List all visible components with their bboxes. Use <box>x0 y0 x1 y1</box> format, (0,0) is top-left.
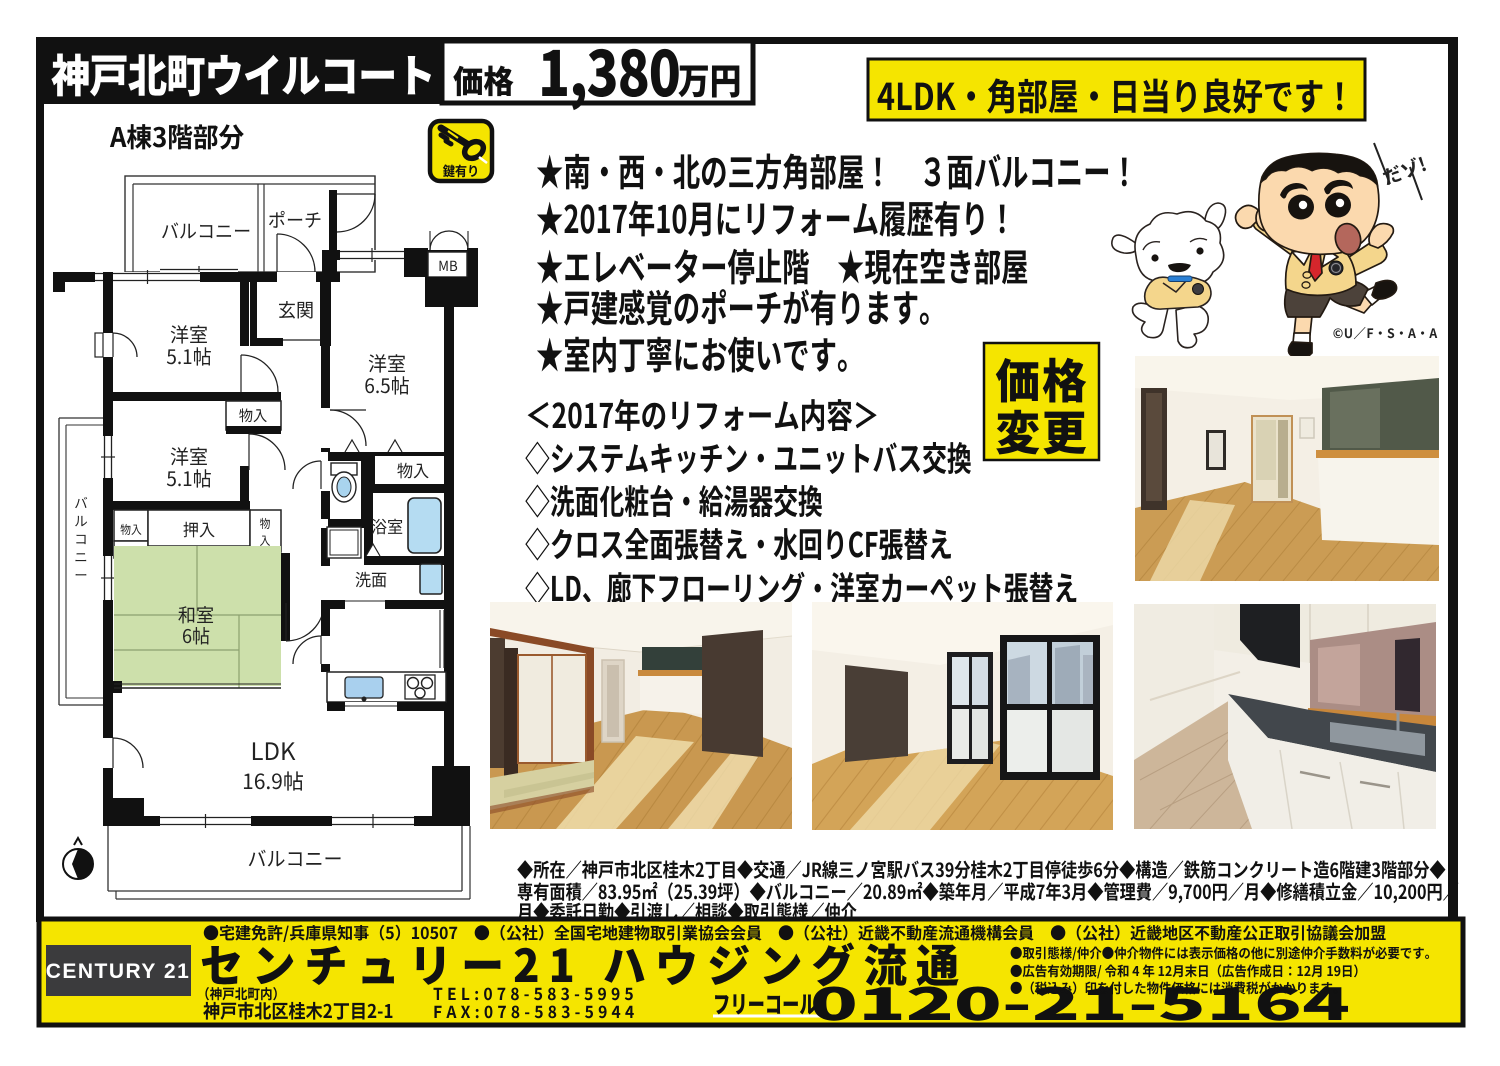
svg-text:CENTURY 21: CENTURY 21 <box>46 960 191 983</box>
